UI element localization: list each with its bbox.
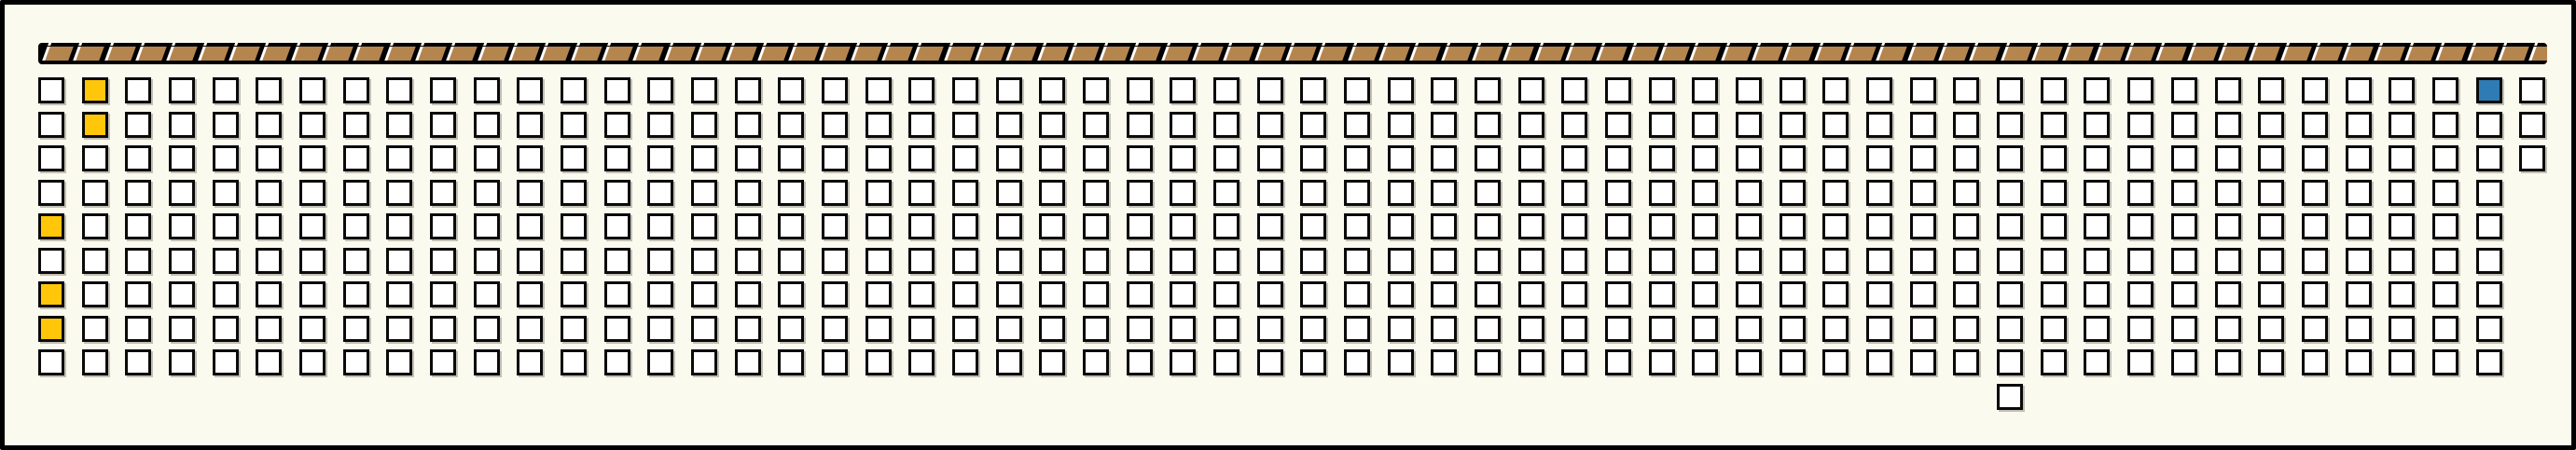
grid-cell[interactable] xyxy=(2215,349,2241,375)
grid-cell[interactable] xyxy=(169,248,195,274)
grid-cell[interactable] xyxy=(1300,281,1326,307)
grid-cell[interactable] xyxy=(2302,213,2328,239)
grid-cell[interactable] xyxy=(517,112,543,138)
grid-cell[interactable] xyxy=(1300,145,1326,171)
grid-cell[interactable] xyxy=(1605,248,1631,274)
grid-cell[interactable] xyxy=(1518,248,1544,274)
grid-cell[interactable] xyxy=(2302,180,2328,206)
grid-cell[interactable] xyxy=(1039,77,1065,103)
grid-cell[interactable] xyxy=(1736,180,1762,206)
grid-cell[interactable] xyxy=(1127,77,1153,103)
grid-cell[interactable] xyxy=(1518,180,1544,206)
grid-cell[interactable] xyxy=(517,281,543,307)
grid-cell[interactable] xyxy=(908,213,935,239)
grid-cell[interactable] xyxy=(2389,180,2415,206)
grid-cell[interactable] xyxy=(386,213,412,239)
grid-cell[interactable] xyxy=(2127,112,2154,138)
grid-cell[interactable] xyxy=(1213,248,1240,274)
grid-cell[interactable] xyxy=(1997,77,2023,103)
grid-cell[interactable] xyxy=(2041,180,2067,206)
grid-cell[interactable] xyxy=(1388,180,1414,206)
grid-cell[interactable] xyxy=(1431,349,1457,375)
grid-cell[interactable] xyxy=(343,180,369,206)
grid-cell[interactable] xyxy=(2389,248,2415,274)
grid-cell[interactable] xyxy=(256,112,282,138)
grid-cell[interactable] xyxy=(2302,145,2328,171)
grid-cell[interactable] xyxy=(2171,349,2197,375)
grid-cell[interactable] xyxy=(1431,145,1457,171)
grid-cell[interactable] xyxy=(2432,316,2458,342)
grid-cell[interactable] xyxy=(2041,112,2067,138)
grid-cell[interactable] xyxy=(1736,349,1762,375)
grid-cell[interactable] xyxy=(2171,180,2197,206)
grid-cell[interactable] xyxy=(169,145,195,171)
grid-cell[interactable] xyxy=(735,213,761,239)
grid-cell[interactable] xyxy=(1822,180,1849,206)
grid-cell[interactable] xyxy=(1518,145,1544,171)
grid-cell[interactable] xyxy=(1561,316,1587,342)
grid-cell[interactable] xyxy=(2346,180,2372,206)
grid-cell[interactable] xyxy=(647,248,673,274)
grid-cell[interactable] xyxy=(1039,248,1065,274)
grid-cell[interactable] xyxy=(82,349,108,375)
grid-cell[interactable] xyxy=(517,248,543,274)
grid-cell[interactable] xyxy=(1649,349,1675,375)
grid-cell[interactable] xyxy=(866,77,892,103)
grid-cell[interactable] xyxy=(1692,112,1718,138)
grid-cell[interactable] xyxy=(169,77,195,103)
grid-cell[interactable] xyxy=(517,213,543,239)
grid-cell[interactable] xyxy=(299,281,325,307)
grid-cell[interactable] xyxy=(1257,349,1283,375)
grid-cell[interactable] xyxy=(561,349,587,375)
grid-cell[interactable] xyxy=(2084,349,2110,375)
grid-cell[interactable] xyxy=(1039,349,1065,375)
grid-cell[interactable] xyxy=(1866,349,1892,375)
grid-cell[interactable] xyxy=(299,248,325,274)
grid-cell[interactable] xyxy=(1388,112,1414,138)
grid-cell[interactable] xyxy=(430,112,456,138)
grid-cell[interactable] xyxy=(778,112,804,138)
grid-cell[interactable] xyxy=(1822,145,1849,171)
grid-cell[interactable] xyxy=(1866,281,1892,307)
grid-cell[interactable] xyxy=(561,248,587,274)
grid-cell[interactable] xyxy=(256,349,282,375)
grid-cell[interactable] xyxy=(1388,213,1414,239)
grid-cell[interactable] xyxy=(647,112,673,138)
grid-cell[interactable] xyxy=(1257,112,1283,138)
grid-cell[interactable] xyxy=(561,112,587,138)
grid-cell[interactable] xyxy=(430,248,456,274)
grid-cell[interactable] xyxy=(2389,281,2415,307)
grid-cell[interactable] xyxy=(386,349,412,375)
grid-cell[interactable] xyxy=(1910,77,1936,103)
grid-cell[interactable] xyxy=(866,248,892,274)
grid-cell[interactable] xyxy=(1780,213,1806,239)
grid-cell[interactable] xyxy=(343,248,369,274)
grid-cell[interactable] xyxy=(1039,180,1065,206)
grid-cell[interactable] xyxy=(213,112,239,138)
grid-cell[interactable] xyxy=(1605,349,1631,375)
grid-cell[interactable] xyxy=(1866,77,1892,103)
grid-cell[interactable] xyxy=(2432,180,2458,206)
grid-cell[interactable] xyxy=(1518,349,1544,375)
grid-cell[interactable] xyxy=(1910,213,1936,239)
grid-cell[interactable] xyxy=(2476,180,2502,206)
grid-cell[interactable] xyxy=(38,112,64,138)
grid-cell[interactable] xyxy=(1953,349,1979,375)
grid-cell[interactable] xyxy=(1649,112,1675,138)
grid-cell[interactable] xyxy=(1997,213,2023,239)
grid-cell[interactable] xyxy=(1561,349,1587,375)
grid-cell[interactable] xyxy=(169,112,195,138)
grid-cell[interactable] xyxy=(386,281,412,307)
grid-cell[interactable] xyxy=(2258,213,2284,239)
grid-cell[interactable] xyxy=(386,112,412,138)
grid-cell[interactable] xyxy=(1344,213,1370,239)
grid-cell[interactable] xyxy=(125,248,151,274)
grid-cell[interactable] xyxy=(1953,248,1979,274)
grid-cell[interactable] xyxy=(2127,180,2154,206)
grid-cell[interactable] xyxy=(561,145,587,171)
grid-cell[interactable] xyxy=(2346,112,2372,138)
grid-cell[interactable] xyxy=(38,145,64,171)
grid-cell[interactable] xyxy=(299,316,325,342)
grid-cell[interactable] xyxy=(474,316,500,342)
grid-cell[interactable] xyxy=(517,349,543,375)
grid-cell[interactable] xyxy=(1127,180,1153,206)
grid-cell[interactable] xyxy=(1475,180,1501,206)
grid-cell[interactable] xyxy=(1649,145,1675,171)
grid-cell[interactable] xyxy=(1344,349,1370,375)
grid-cell[interactable] xyxy=(1257,180,1283,206)
grid-cell[interactable] xyxy=(517,316,543,342)
grid-cell[interactable] xyxy=(647,213,673,239)
grid-cell[interactable] xyxy=(386,180,412,206)
grid-cell[interactable] xyxy=(2302,281,2328,307)
grid-cell[interactable] xyxy=(1300,77,1326,103)
grid-cell[interactable] xyxy=(1780,281,1806,307)
grid-cell[interactable] xyxy=(1170,180,1196,206)
grid-cell[interactable] xyxy=(1866,316,1892,342)
grid-cell[interactable] xyxy=(430,349,456,375)
grid-cell[interactable] xyxy=(1388,349,1414,375)
grid-cell[interactable] xyxy=(2389,145,2415,171)
grid-cell[interactable] xyxy=(1300,349,1326,375)
grid-cell[interactable] xyxy=(866,316,892,342)
grid-cell[interactable] xyxy=(1475,349,1501,375)
grid-cell[interactable] xyxy=(82,316,108,342)
grid-cell[interactable] xyxy=(474,213,500,239)
grid-cell[interactable] xyxy=(213,281,239,307)
grid-cell[interactable] xyxy=(2171,112,2197,138)
grid-cell[interactable] xyxy=(952,248,978,274)
grid-cell[interactable] xyxy=(1736,213,1762,239)
grid-cell[interactable] xyxy=(1518,316,1544,342)
grid-cell[interactable] xyxy=(604,180,630,206)
grid-cell[interactable] xyxy=(604,281,630,307)
grid-cell[interactable] xyxy=(2084,281,2110,307)
grid-cell[interactable] xyxy=(1127,213,1153,239)
grid-cell[interactable] xyxy=(561,281,587,307)
grid-cell[interactable] xyxy=(169,213,195,239)
grid-cell[interactable] xyxy=(1170,316,1196,342)
grid-cell[interactable] xyxy=(778,213,804,239)
grid-cell[interactable] xyxy=(1561,180,1587,206)
grid-cell[interactable] xyxy=(691,316,717,342)
grid-cell[interactable] xyxy=(908,349,935,375)
grid-cell[interactable] xyxy=(908,180,935,206)
grid-cell[interactable] xyxy=(2346,145,2372,171)
grid-cell[interactable] xyxy=(2346,281,2372,307)
grid-cell[interactable] xyxy=(1822,213,1849,239)
grid-cell[interactable] xyxy=(2127,349,2154,375)
grid-cell[interactable] xyxy=(1561,248,1587,274)
grid-cell[interactable] xyxy=(517,77,543,103)
grid-cell[interactable] xyxy=(2084,77,2110,103)
grid-cell[interactable] xyxy=(996,349,1022,375)
grid-cell[interactable] xyxy=(2041,349,2067,375)
grid-cell[interactable] xyxy=(1692,281,1718,307)
grid-cell[interactable] xyxy=(125,180,151,206)
grid-cell[interactable] xyxy=(1083,77,1109,103)
grid-cell[interactable] xyxy=(1344,145,1370,171)
grid-cell[interactable] xyxy=(125,281,151,307)
grid-cell[interactable] xyxy=(1605,213,1631,239)
grid-cell[interactable] xyxy=(996,213,1022,239)
grid-cell[interactable] xyxy=(299,349,325,375)
grid-cell[interactable] xyxy=(2258,281,2284,307)
grid-cell[interactable] xyxy=(735,281,761,307)
grid-cell[interactable] xyxy=(2084,112,2110,138)
grid-cell[interactable] xyxy=(299,77,325,103)
grid-cell[interactable] xyxy=(1736,316,1762,342)
grid-cell[interactable] xyxy=(2302,248,2328,274)
grid-cell[interactable] xyxy=(474,248,500,274)
grid-cell[interactable] xyxy=(386,145,412,171)
grid-cell[interactable] xyxy=(1910,145,1936,171)
grid-cell[interactable] xyxy=(2476,213,2502,239)
grid-cell[interactable] xyxy=(866,213,892,239)
grid-cell[interactable] xyxy=(1692,145,1718,171)
grid-cell[interactable] xyxy=(1170,77,1196,103)
grid-cell[interactable] xyxy=(343,77,369,103)
grid-cell-selected-yellow[interactable] xyxy=(82,112,108,138)
grid-cell[interactable] xyxy=(2171,281,2197,307)
grid-cell[interactable] xyxy=(1910,281,1936,307)
grid-cell[interactable] xyxy=(561,77,587,103)
grid-cell[interactable] xyxy=(125,145,151,171)
grid-cell[interactable] xyxy=(1170,112,1196,138)
grid-cell[interactable] xyxy=(1518,281,1544,307)
grid-cell[interactable] xyxy=(1953,316,1979,342)
grid-cell[interactable] xyxy=(2171,213,2197,239)
grid-cell[interactable] xyxy=(1344,77,1370,103)
grid-cell[interactable] xyxy=(1475,77,1501,103)
grid-cell[interactable] xyxy=(1997,248,2023,274)
grid-cell[interactable] xyxy=(1257,77,1283,103)
grid-cell[interactable] xyxy=(2258,316,2284,342)
grid-cell[interactable] xyxy=(2127,213,2154,239)
grid-cell[interactable] xyxy=(604,316,630,342)
grid-cell[interactable] xyxy=(2258,77,2284,103)
grid-cell[interactable] xyxy=(1649,248,1675,274)
grid-cell[interactable] xyxy=(2084,316,2110,342)
grid-cell[interactable] xyxy=(647,77,673,103)
grid-cell[interactable] xyxy=(1561,112,1587,138)
grid-cell[interactable] xyxy=(1997,316,2023,342)
grid-cell[interactable] xyxy=(1213,145,1240,171)
grid-cell[interactable] xyxy=(604,112,630,138)
grid-cell[interactable] xyxy=(125,213,151,239)
grid-cell[interactable] xyxy=(1170,349,1196,375)
grid-cell[interactable] xyxy=(125,349,151,375)
grid-cell[interactable] xyxy=(1127,349,1153,375)
grid-cell[interactable] xyxy=(213,316,239,342)
grid-cell[interactable] xyxy=(1692,213,1718,239)
grid-cell[interactable] xyxy=(1780,248,1806,274)
grid-cell[interactable] xyxy=(386,316,412,342)
grid-cell[interactable] xyxy=(952,349,978,375)
grid-cell[interactable] xyxy=(1910,180,1936,206)
grid-cell[interactable] xyxy=(2346,316,2372,342)
grid-cell[interactable] xyxy=(2389,316,2415,342)
grid-cell[interactable] xyxy=(1083,213,1109,239)
grid-cell[interactable] xyxy=(1388,248,1414,274)
grid-cell[interactable] xyxy=(1127,316,1153,342)
grid-cell[interactable] xyxy=(2346,213,2372,239)
grid-cell[interactable] xyxy=(256,213,282,239)
grid-cell[interactable] xyxy=(1213,112,1240,138)
grid-cell[interactable] xyxy=(1953,180,1979,206)
grid-cell[interactable] xyxy=(691,213,717,239)
grid-cell[interactable] xyxy=(1822,281,1849,307)
grid-cell[interactable] xyxy=(474,349,500,375)
grid-cell[interactable] xyxy=(1780,145,1806,171)
grid-cell[interactable] xyxy=(2215,316,2241,342)
grid-cell[interactable] xyxy=(1170,281,1196,307)
grid-cell[interactable] xyxy=(2258,349,2284,375)
grid-cell[interactable] xyxy=(1213,349,1240,375)
grid-cell[interactable] xyxy=(822,213,848,239)
grid-cell[interactable] xyxy=(2127,145,2154,171)
grid-cell[interactable] xyxy=(82,145,108,171)
grid-cell-selected-yellow[interactable] xyxy=(38,281,64,307)
grid-cell[interactable] xyxy=(1083,112,1109,138)
grid-cell[interactable] xyxy=(866,112,892,138)
grid-cell[interactable] xyxy=(2302,316,2328,342)
grid-cell[interactable] xyxy=(996,248,1022,274)
grid-cell[interactable] xyxy=(2127,281,2154,307)
grid-cell[interactable] xyxy=(1866,112,1892,138)
grid-cell[interactable] xyxy=(1039,145,1065,171)
grid-cell[interactable] xyxy=(996,180,1022,206)
grid-cell[interactable] xyxy=(1388,77,1414,103)
grid-cell[interactable] xyxy=(1910,349,1936,375)
grid-cell[interactable] xyxy=(2476,112,2502,138)
grid-cell[interactable] xyxy=(1213,77,1240,103)
grid-cell[interactable] xyxy=(2476,145,2502,171)
grid-cell[interactable] xyxy=(778,248,804,274)
grid-cell[interactable] xyxy=(735,145,761,171)
grid-cell[interactable] xyxy=(1953,112,1979,138)
grid-cell[interactable] xyxy=(2432,112,2458,138)
grid-cell[interactable] xyxy=(1692,248,1718,274)
grid-cell[interactable] xyxy=(1039,112,1065,138)
grid-cell[interactable] xyxy=(1300,112,1326,138)
grid-cell[interactable] xyxy=(1083,316,1109,342)
grid-cell[interactable] xyxy=(2084,180,2110,206)
grid-cell[interactable] xyxy=(125,112,151,138)
grid-cell[interactable] xyxy=(213,349,239,375)
grid-cell[interactable] xyxy=(691,77,717,103)
grid-cell[interactable] xyxy=(1997,349,2023,375)
grid-cell[interactable] xyxy=(1344,316,1370,342)
grid-cell[interactable] xyxy=(1431,316,1457,342)
grid-cell[interactable] xyxy=(1736,112,1762,138)
grid-cell[interactable] xyxy=(908,248,935,274)
grid-cell[interactable] xyxy=(1780,77,1806,103)
grid-cell[interactable] xyxy=(82,248,108,274)
grid-cell[interactable] xyxy=(2389,112,2415,138)
grid-cell[interactable] xyxy=(82,180,108,206)
grid-cell[interactable] xyxy=(778,281,804,307)
grid-cell[interactable] xyxy=(1475,213,1501,239)
grid-cell[interactable] xyxy=(2127,316,2154,342)
grid-cell[interactable] xyxy=(1257,281,1283,307)
grid-cell-selected-yellow[interactable] xyxy=(38,316,64,342)
grid-cell[interactable] xyxy=(2258,248,2284,274)
grid-cell[interactable] xyxy=(2346,248,2372,274)
grid-cell[interactable] xyxy=(256,248,282,274)
grid-cell[interactable] xyxy=(299,145,325,171)
grid-cell[interactable] xyxy=(1780,180,1806,206)
grid-cell[interactable] xyxy=(2432,281,2458,307)
grid-cell[interactable] xyxy=(1170,248,1196,274)
grid-cell[interactable] xyxy=(1910,316,1936,342)
grid-cell[interactable] xyxy=(169,180,195,206)
grid-cell[interactable] xyxy=(822,281,848,307)
grid-cell[interactable] xyxy=(1083,349,1109,375)
grid-cell[interactable] xyxy=(1866,213,1892,239)
grid-cell[interactable] xyxy=(1997,281,2023,307)
grid-cell[interactable] xyxy=(2127,77,2154,103)
grid-cell[interactable] xyxy=(1780,112,1806,138)
grid-cell[interactable] xyxy=(1300,213,1326,239)
grid-cell[interactable] xyxy=(2041,213,2067,239)
grid-cell[interactable] xyxy=(604,248,630,274)
grid-cell[interactable] xyxy=(1039,213,1065,239)
grid-cell[interactable] xyxy=(1475,112,1501,138)
grid-cell[interactable] xyxy=(2519,112,2545,138)
grid-cell[interactable] xyxy=(1257,248,1283,274)
grid-cell[interactable] xyxy=(691,180,717,206)
grid-cell-selected-yellow[interactable] xyxy=(38,213,64,239)
grid-cell[interactable] xyxy=(1780,316,1806,342)
grid-cell[interactable] xyxy=(1561,213,1587,239)
grid-cell[interactable] xyxy=(691,248,717,274)
grid-cell[interactable] xyxy=(1083,145,1109,171)
grid-cell[interactable] xyxy=(735,349,761,375)
grid-cell[interactable] xyxy=(474,77,500,103)
grid-cell[interactable] xyxy=(1692,180,1718,206)
grid-cell[interactable] xyxy=(1605,77,1631,103)
grid-cell[interactable] xyxy=(822,316,848,342)
grid-cell[interactable] xyxy=(2084,145,2110,171)
grid-cell[interactable] xyxy=(1692,349,1718,375)
grid-cell[interactable] xyxy=(647,145,673,171)
grid-cell[interactable] xyxy=(1649,281,1675,307)
